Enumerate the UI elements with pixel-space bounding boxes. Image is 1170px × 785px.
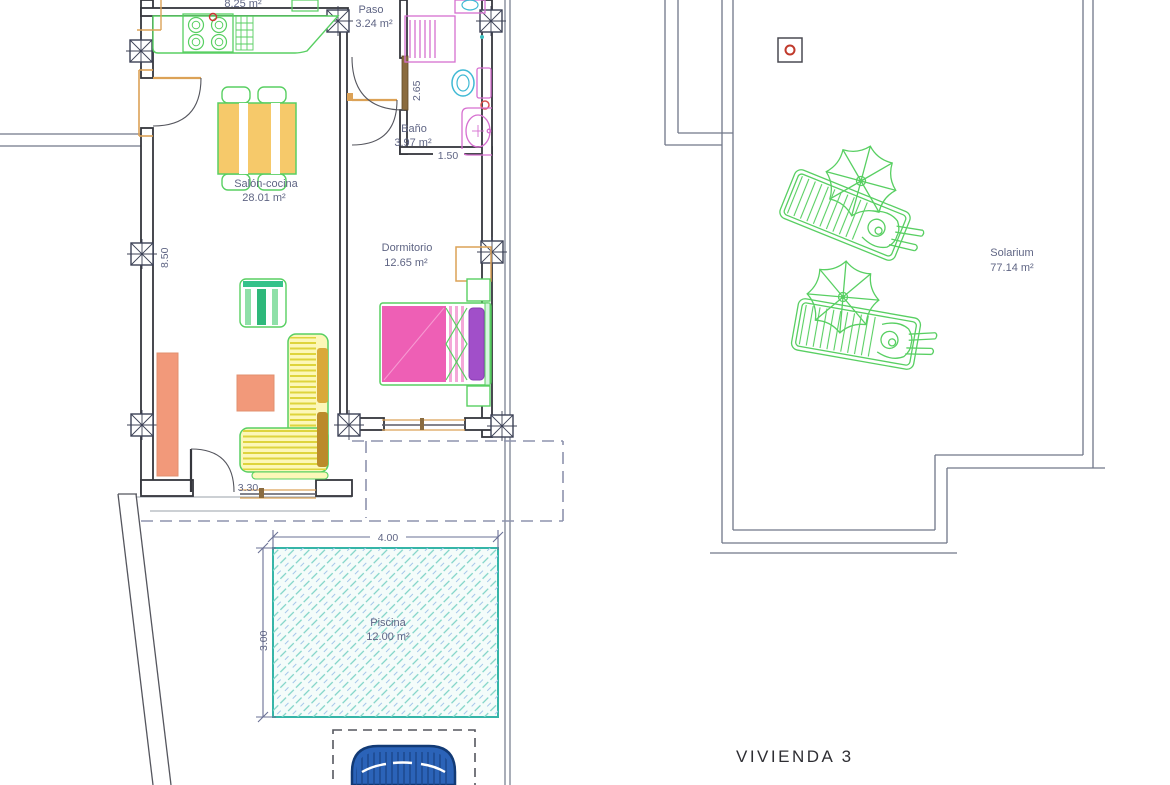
dormitorio-name-label: Dormitorio: [382, 242, 433, 254]
paso-name-label: Paso: [358, 4, 383, 16]
dim-salon-height: 8.50: [159, 247, 171, 268]
tv-unit: [240, 279, 286, 327]
salon-area-label: 28.01 m²: [242, 192, 286, 204]
solarium-skylight: [778, 38, 802, 62]
solarium-name-label: Solarium: [990, 247, 1033, 259]
kitchen-area-label: 8.25 m²: [224, 0, 262, 10]
coffee-table: [237, 375, 274, 411]
sun-loungers: [778, 137, 939, 374]
dormitorio-area-label: 12.65 m²: [384, 257, 428, 269]
solarium-walls: [665, 0, 1105, 553]
nightstand-bottom: [467, 386, 490, 406]
sideboard: [157, 353, 178, 476]
bano-name-label: Baño: [401, 123, 427, 135]
piscina-area-label: 12.00 m²: [366, 631, 410, 643]
car: [352, 746, 455, 785]
floor-plan-page: 8.25 m² Paso 3.24 m² Salón-cocina 28.01 …: [0, 0, 1170, 785]
bedroom-window: [382, 418, 465, 430]
floor-plan-drawing: 8.25 m² Paso 3.24 m² Salón-cocina 28.01 …: [0, 0, 1170, 785]
drain-icon: [480, 35, 484, 39]
bathroom-door: [352, 56, 408, 110]
paso-area-label: 3.24 m²: [355, 18, 393, 30]
double-bed: [380, 303, 491, 385]
shower: [405, 16, 484, 62]
bano-area-label: 3.97 m²: [394, 137, 432, 149]
piscina-name-label: Piscina: [370, 617, 406, 629]
dim-salon-door: 3.30: [238, 482, 259, 494]
dim-bano-width: 1.50: [438, 150, 459, 162]
dim-pool-depth: 3.00: [258, 630, 270, 651]
plot-diagonal-boundary: [118, 494, 171, 785]
hall-door: [347, 93, 397, 145]
entry-door: [139, 70, 201, 136]
porch-slab-lines: [137, 497, 352, 511]
dining-table: [218, 87, 296, 190]
dim-bano-height: 2.65: [411, 80, 423, 101]
nightstand-top: [467, 279, 490, 301]
plan-title: VIVIENDA 3: [736, 747, 854, 766]
solarium-area-label: 77.14 m²: [990, 262, 1034, 274]
terrace-door: [191, 449, 234, 492]
salon-name-label: Salón-cocina: [234, 178, 298, 190]
dim-pool-width: 4.00: [378, 532, 399, 544]
